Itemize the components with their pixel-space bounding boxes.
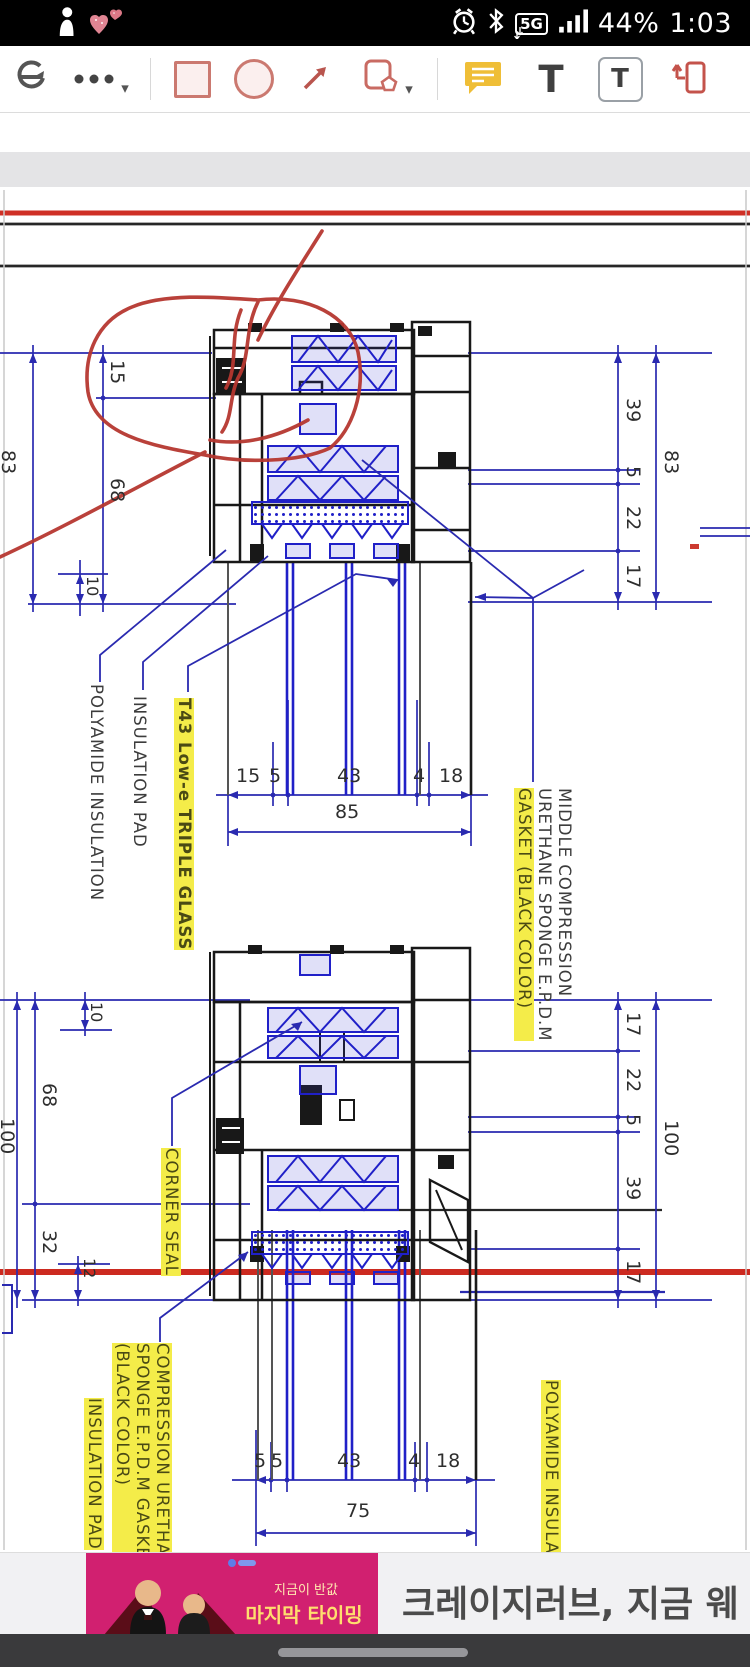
dimension-label: 68 [39,1083,58,1107]
dimension-label: 32 [39,1230,58,1254]
dimension-label: 15 [107,360,126,384]
dimension-label: 17 [623,1012,642,1036]
dimension-label: 22 [623,506,642,530]
dimension-label: 5 [623,466,642,478]
ad-banner[interactable]: 지금이 반값 마지막 타이밍 [86,1553,378,1635]
dimension-label: 83 [661,450,680,474]
dimension-label: 43 [337,1452,361,1471]
label-middle-compression: MIDDLE COMPRESSION URETHANE SPONGE E.P.D… [514,788,574,1041]
dimension-label: 17 [623,1260,642,1284]
dimension-label: 22 [623,1068,642,1092]
dimension-label: 10 [84,576,100,596]
dimension-label: 4 [413,767,425,786]
ad-headline: 크레이지러브, 지금 웨 [402,1575,739,1627]
label-t43-triple-glass: T43 Low-e TRIPLE GLASS [174,698,194,950]
phone-screen: 5G 44% 1:03 [0,0,750,1667]
navigation-bar [0,1634,750,1667]
dimension-label: 39 [623,398,642,422]
dimension-label: 5 [269,767,281,786]
ad-banner-strip: 지금이 반값 마지막 타이밍 크레이지러브, 지금 웨 [0,1552,750,1635]
dimension-label: 10 [88,1002,104,1022]
dimension-label: 18 [436,1452,460,1471]
dimension-label: 85 [335,803,359,822]
label-insulation-pad-top: INSULATION PAD [129,696,149,848]
label-polyamide-insulation-top: POLYAMIDE INSULATION [86,684,106,901]
dimension-label: 43 [337,767,361,786]
home-indicator[interactable] [278,1648,468,1657]
label-corner-seal: CORNER SEAL [161,1148,181,1276]
ad-promo-line1: 지금이 반값 [236,1579,376,1598]
dimension-label: 5 [254,1452,266,1471]
dimension-label: 100 [0,1118,16,1154]
ad-promo-line2: 마지막 타이밍 [228,1599,378,1628]
dimension-label: 15 [236,767,260,786]
dimension-label: 18 [439,767,463,786]
label-insulation-pad-bottom: INSULATION PAD [84,1398,104,1550]
dimension-label: 5 [623,1114,642,1126]
dimension-label: 100 [661,1120,680,1156]
dimension-label: 83 [0,450,17,474]
dimension-label: 39 [623,1176,642,1200]
dimension-label: 5 [271,1452,283,1471]
dimension-label: 75 [346,1502,370,1521]
dimension-label: 68 [107,478,126,502]
dimension-label: 17 [623,564,642,588]
gaskets-lower [252,955,408,1284]
dimension-label: 12 [81,1258,97,1278]
label-compression-gasket: COMPRESSION URETHANE SPONGE E.P.D.M GASK… [112,1343,172,1580]
dimension-label: 4 [408,1452,420,1471]
